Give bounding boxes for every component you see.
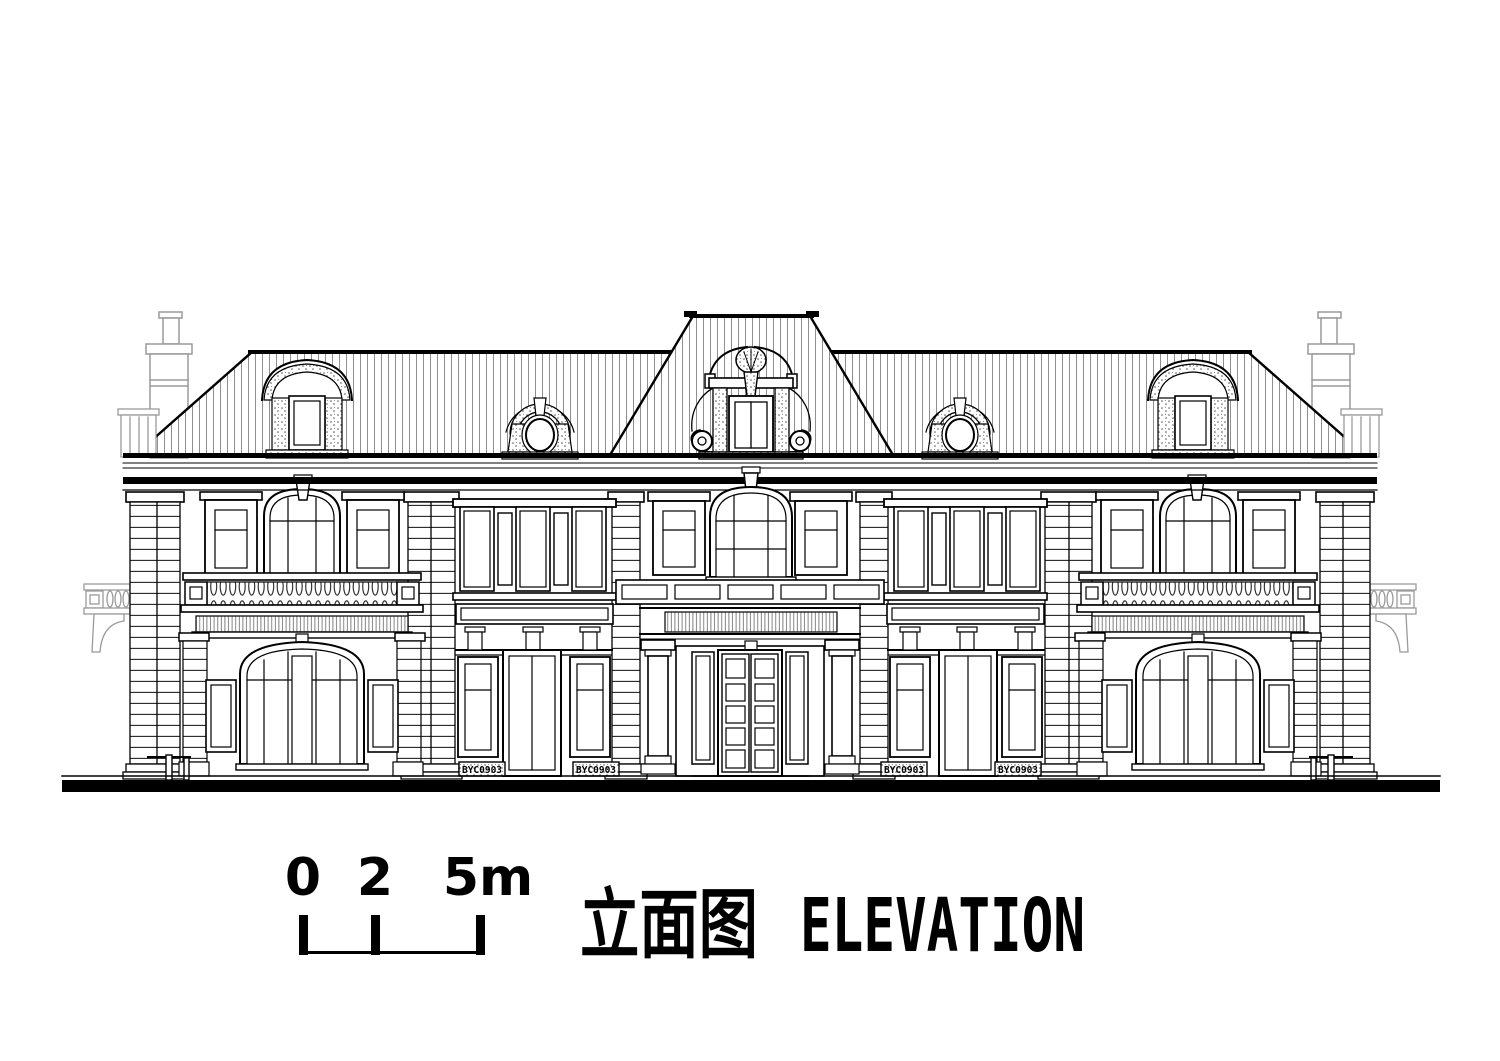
facade-left-half bbox=[84, 312, 710, 780]
balcony bbox=[181, 573, 423, 612]
porch-entablature bbox=[616, 580, 884, 639]
pavilion-pier bbox=[605, 492, 647, 779]
ground-line bbox=[62, 776, 1440, 792]
porch-column bbox=[641, 640, 675, 774]
main-entrance bbox=[676, 641, 824, 776]
plaque-label: BYC0903 bbox=[576, 765, 616, 776]
plaque-label: BYC0903 bbox=[998, 765, 1038, 776]
scale-tick bbox=[476, 915, 485, 955]
title-chinese: 立面图 bbox=[580, 880, 758, 969]
drawing-sheet: BYC0903 BYC0903 BYC0903 BYC0903 0 2 5m 立… bbox=[0, 0, 1500, 1061]
roof-side-structure bbox=[118, 409, 159, 457]
scale-label-5m: 5m bbox=[443, 848, 533, 908]
title-english: ELEVATION bbox=[800, 883, 1085, 969]
scale-bar: 0 2 5m bbox=[285, 848, 533, 955]
scale-tick bbox=[299, 915, 308, 955]
scale-label-2: 2 bbox=[357, 848, 393, 908]
pavilion-side-window bbox=[648, 492, 710, 575]
plaque-label: BYC0903 bbox=[884, 765, 924, 776]
scale-label-0: 0 bbox=[285, 848, 321, 908]
link-ground-floor bbox=[456, 627, 619, 776]
link-upper-windows bbox=[453, 499, 616, 624]
wing-roof bbox=[135, 352, 680, 455]
plaque-label: BYC0903 bbox=[462, 765, 502, 776]
building-elevation-drawing: BYC0903 BYC0903 BYC0903 BYC0903 0 2 5m 立… bbox=[0, 0, 1500, 1061]
wing-ground-floor bbox=[179, 633, 425, 776]
scale-baseline bbox=[299, 951, 485, 954]
facade-right-half bbox=[790, 312, 1416, 780]
pavilion-arched-window bbox=[706, 467, 796, 582]
drawing-title: 立面图 ELEVATION bbox=[580, 880, 1085, 969]
wing-dormer bbox=[262, 360, 352, 458]
corner-pier bbox=[123, 492, 187, 779]
scale-tick bbox=[371, 915, 380, 955]
side-balcony bbox=[84, 584, 130, 652]
